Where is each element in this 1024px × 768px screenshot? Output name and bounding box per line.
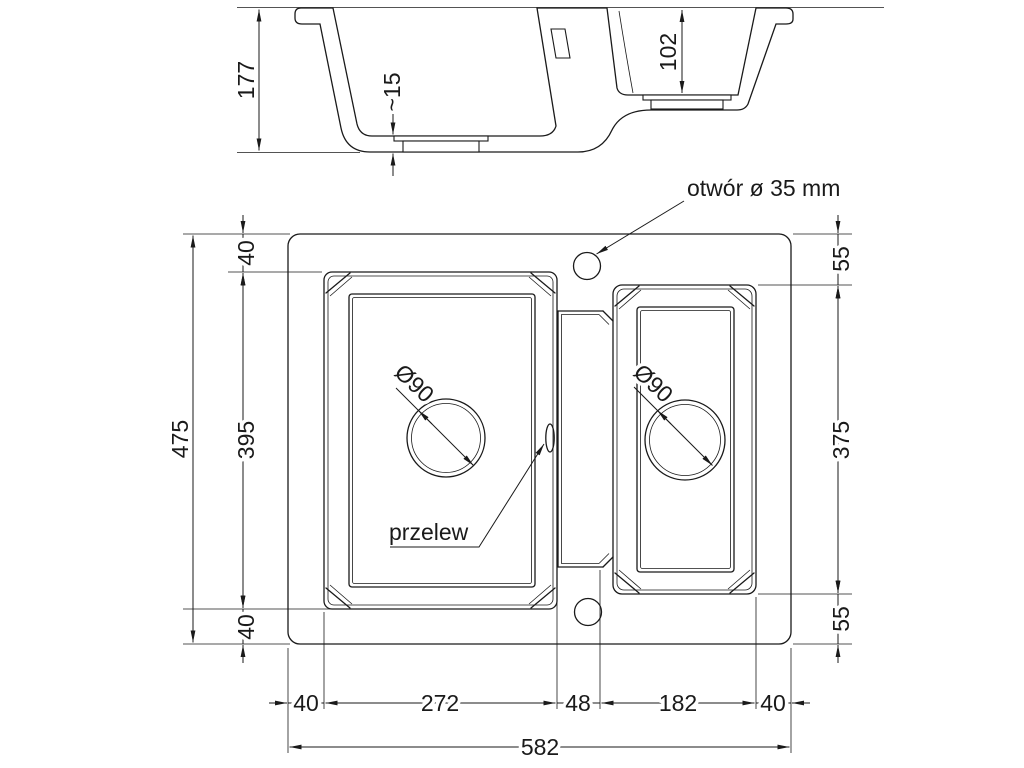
plan-view: Ø90 Ø90 przelew otwór ø 35 mm 475	[167, 175, 854, 760]
section-overflow-gap	[551, 29, 570, 58]
section-body-hatched	[295, 8, 793, 152]
main-bowl	[324, 272, 557, 609]
dim-main-bowl-height-label: 395	[233, 421, 259, 459]
technical-drawing-page: 177 ~15 102	[0, 0, 1024, 768]
dims-right: 55 375 55	[758, 215, 854, 663]
section-bowl-wall-curve	[619, 11, 633, 93]
dim-main-bowl-width-label: 272	[421, 690, 459, 716]
dim-right-margin-label: 40	[760, 690, 786, 716]
tap-hole-bottom	[575, 599, 602, 626]
dim-right-top-label: 55	[828, 246, 854, 272]
dim-floor-thickness: ~15	[379, 72, 405, 176]
dim-small-drain-label: Ø90	[629, 359, 679, 408]
dim-section-depth-label: 177	[233, 61, 259, 99]
dim-main-drain-label: Ø90	[390, 359, 440, 408]
divider-channel	[558, 311, 613, 567]
small-drain	[645, 400, 725, 480]
section-main-drain-recess	[394, 136, 488, 152]
dim-floor-thickness-label: ~15	[379, 72, 405, 111]
dim-small-bowl-depth: 102	[655, 10, 682, 93]
sink-technical-drawing: 177 ~15 102	[0, 0, 1024, 768]
small-bowl-corner-bevels	[615, 286, 754, 593]
overflow-callout: przelew	[389, 424, 554, 547]
main-bowl-corner-bevels	[326, 273, 555, 608]
dim-bottom-offset-label: 40	[233, 614, 259, 640]
dim-small-bowl-width-label: 182	[659, 690, 697, 716]
dim-main-drain-diameter: Ø90	[390, 359, 474, 466]
tap-hole-callout: otwór ø 35 mm	[597, 175, 841, 254]
dim-small-bowl-depth-label: 102	[655, 33, 681, 71]
dim-total-width-label: 582	[521, 734, 559, 760]
tap-hole-label: otwór ø 35 mm	[687, 175, 840, 201]
dim-right-bottom-label: 55	[828, 606, 854, 632]
dim-small-drain-diameter: Ø90	[629, 359, 713, 466]
dim-top-offset-label: 40	[233, 240, 259, 266]
dim-left-margin-label: 40	[293, 690, 319, 716]
small-bowl	[613, 285, 756, 594]
overflow-label: przelew	[389, 519, 469, 545]
dims-bottom: 40 272 48 182 40 582	[269, 570, 810, 760]
tap-hole-top	[574, 253, 601, 280]
dim-small-bowl-height-label: 375	[828, 421, 854, 459]
sink-outline	[288, 234, 791, 644]
dim-section-depth: 177	[233, 10, 360, 153]
cross-section-view: 177 ~15 102	[233, 8, 884, 177]
dim-total-height-label: 475	[167, 420, 193, 458]
dim-divider-width-label: 48	[565, 690, 591, 716]
section-small-drain-recess	[643, 95, 731, 109]
